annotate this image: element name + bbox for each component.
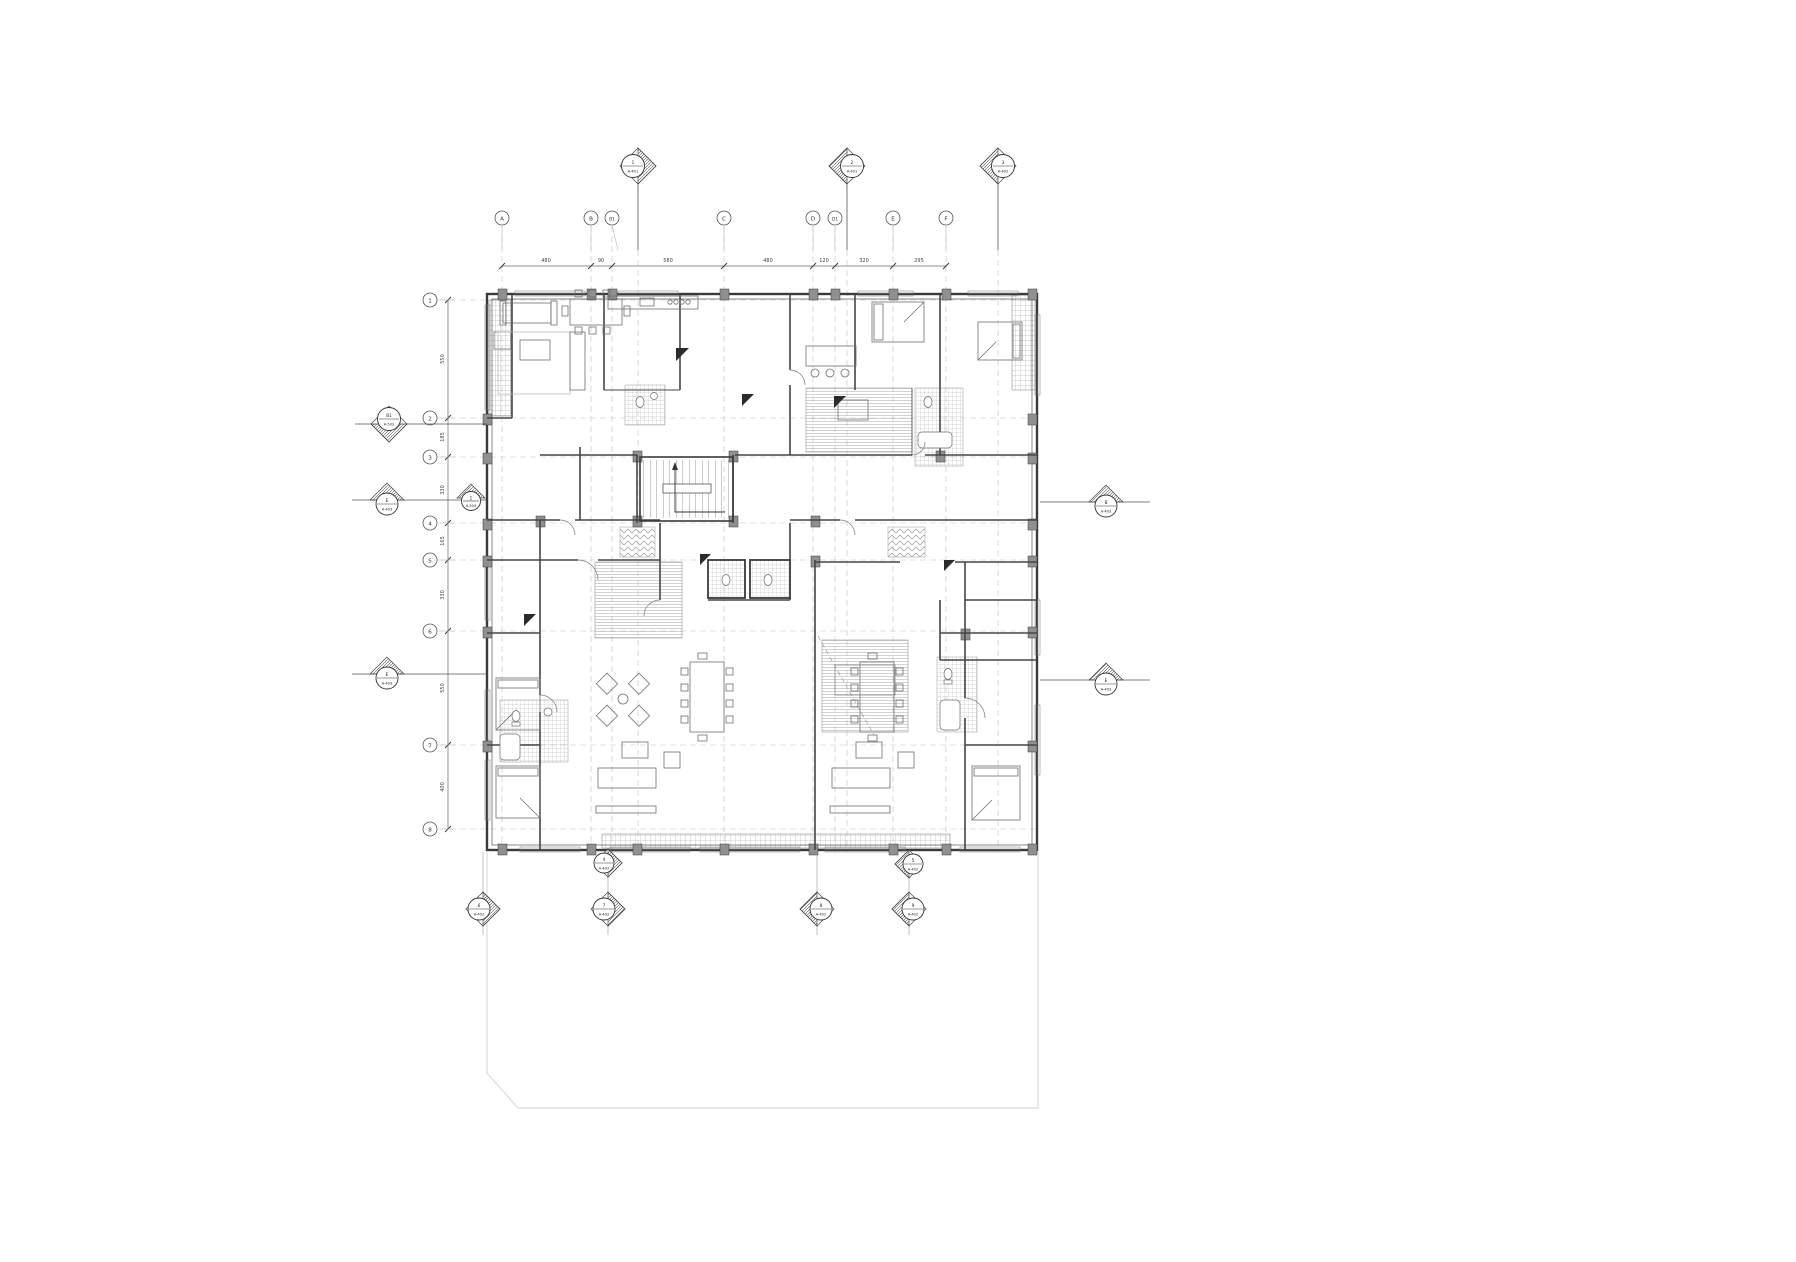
grid-bubble-D1: D1	[832, 217, 838, 223]
floor-hatches	[489, 295, 1035, 848]
marker-num: B1	[386, 413, 392, 418]
section-marker-right-1: B A-403	[1040, 485, 1150, 517]
marker-num: E	[1105, 678, 1108, 683]
section-marker-bottom-3: 6 A-402	[466, 892, 500, 926]
dim-top-1: 480	[541, 258, 551, 264]
dim-top-2: 90	[598, 258, 604, 264]
section-markers-right: B A-403 E A-403	[1040, 485, 1150, 695]
section-marker-bottom-4: 7 A-402	[591, 892, 625, 926]
grid-bubble-D: D	[811, 217, 815, 223]
bed-bottom-right	[972, 766, 1020, 820]
dim-left-7: 400	[440, 782, 446, 792]
section-marker-left-1: B1 A-503	[355, 406, 487, 442]
floor-plan-sheet: 480 90 580 480 120 320 295 550 185 330 1…	[0, 0, 1796, 1262]
grid-bubble-E: E	[891, 217, 895, 223]
grid-bubble-3: 3	[428, 456, 432, 462]
bath-tile-1	[625, 385, 665, 425]
marker-num: 3	[1002, 160, 1005, 165]
section-markers-bottom: 4 A-402 5 A-402 6 A-402 7 A-402	[466, 849, 926, 935]
bed-top-right	[872, 302, 924, 342]
dim-top-7: 295	[914, 258, 924, 264]
balcony-hatch-top-right	[1012, 295, 1035, 390]
marker-sheet: A-403	[1101, 510, 1112, 514]
section-marker-top-1: 1 A-401	[620, 148, 656, 250]
grid-bubble-7: 7	[428, 744, 432, 750]
section-marker-bottom-6: 9 A-402	[892, 892, 926, 926]
grid-bubble-A: A	[500, 217, 504, 223]
section-marker-left-3: 1 A-503	[457, 484, 485, 511]
marker-sheet: A-402	[599, 913, 610, 917]
grid-bubble-4: 4	[428, 522, 432, 528]
marker-num: 5	[912, 858, 915, 863]
dimensions-left: 550 185 330 165 330 550 400	[440, 297, 451, 832]
grid-bubbles-top: A B B1 C D D1 E F	[495, 211, 953, 250]
grid-bubble-8: 8	[428, 828, 432, 834]
grid-bubble-B: B	[589, 217, 593, 223]
dim-left-4: 165	[440, 536, 446, 546]
marker-num: E	[386, 672, 389, 677]
dim-top-5: 120	[819, 258, 829, 264]
stair-landing-rail	[663, 484, 711, 493]
closet-1	[620, 527, 655, 557]
dim-top-4: 480	[763, 258, 773, 264]
site-boundary	[487, 852, 1038, 1108]
marker-num: B	[1105, 500, 1108, 505]
marker-num: 8	[820, 903, 823, 908]
furniture	[494, 290, 1022, 820]
marker-num: 1	[470, 496, 473, 501]
marker-sheet: A-403	[382, 508, 393, 512]
dim-top-3: 580	[663, 258, 673, 264]
terrace-stripes-3	[595, 562, 682, 638]
section-marker-bottom-2: 5 A-402	[895, 850, 923, 878]
marker-num: E	[386, 498, 389, 503]
marker-num: 4	[603, 857, 606, 862]
grid-bubble-1: 1	[428, 299, 432, 305]
floor-plan-drawing: 480 90 580 480 120 320 295 550 185 330 1…	[0, 0, 1796, 1262]
grid-bubble-2: 2	[428, 417, 432, 423]
closet-2	[888, 527, 925, 557]
section-marker-top-3: 3 A-402	[980, 148, 1016, 250]
marker-sheet: A-401	[847, 170, 858, 174]
marker-num: 1	[632, 160, 635, 165]
grid-bubble-F: F	[944, 217, 947, 223]
marker-sheet: A-402	[908, 913, 919, 917]
dim-left-1: 550	[440, 354, 446, 364]
marker-sheet: A-402	[816, 913, 827, 917]
dim-left-2: 185	[440, 432, 446, 442]
marker-num: 7	[603, 903, 606, 908]
section-marker-right-2: E A-403	[1040, 663, 1150, 695]
marker-sheet: A-402	[599, 867, 610, 871]
section-marker-bottom-5: 8 A-402	[800, 892, 834, 926]
grid-bubble-C: C	[722, 217, 726, 223]
dim-top-6: 320	[859, 258, 869, 264]
marker-sheet: A-503	[466, 504, 477, 508]
marker-num: 6	[478, 903, 481, 908]
dining-table-left	[681, 653, 733, 741]
marker-num: 9	[912, 903, 915, 908]
section-marker-left-4: E A-403	[352, 657, 487, 689]
marker-sheet: A-403	[1101, 688, 1112, 692]
grid-bubble-B1: B1	[609, 217, 615, 223]
marker-sheet: A-403	[382, 682, 393, 686]
section-markers-top: 1 A-401 2 A-401 3 A-402	[620, 148, 1016, 250]
cross-seating	[596, 673, 649, 726]
grid-bubbles-left: 1 2 3 4 5 6 7 8	[423, 293, 455, 836]
dim-left-5: 330	[440, 590, 446, 600]
grid-bubble-5: 5	[428, 559, 432, 565]
marker-sheet: A-503	[384, 423, 395, 427]
section-marker-bottom-1: 4 A-402	[594, 849, 622, 877]
marker-sheet: A-402	[908, 868, 919, 872]
marker-sheet: A-402	[998, 170, 1009, 174]
marker-sheet: A-402	[474, 913, 485, 917]
marker-num: 2	[851, 160, 854, 165]
bed-bottom-left-2	[496, 766, 540, 818]
section-marker-top-2: 2 A-401	[829, 148, 865, 250]
grid-bubble-6: 6	[428, 630, 432, 636]
dim-left-6: 550	[440, 683, 446, 693]
section-markers-left: B1 A-503 E A-403 1 A-503 E A-403	[352, 406, 487, 689]
dim-left-3: 330	[440, 485, 446, 495]
marker-sheet: A-401	[628, 170, 639, 174]
stair-core	[640, 457, 733, 521]
